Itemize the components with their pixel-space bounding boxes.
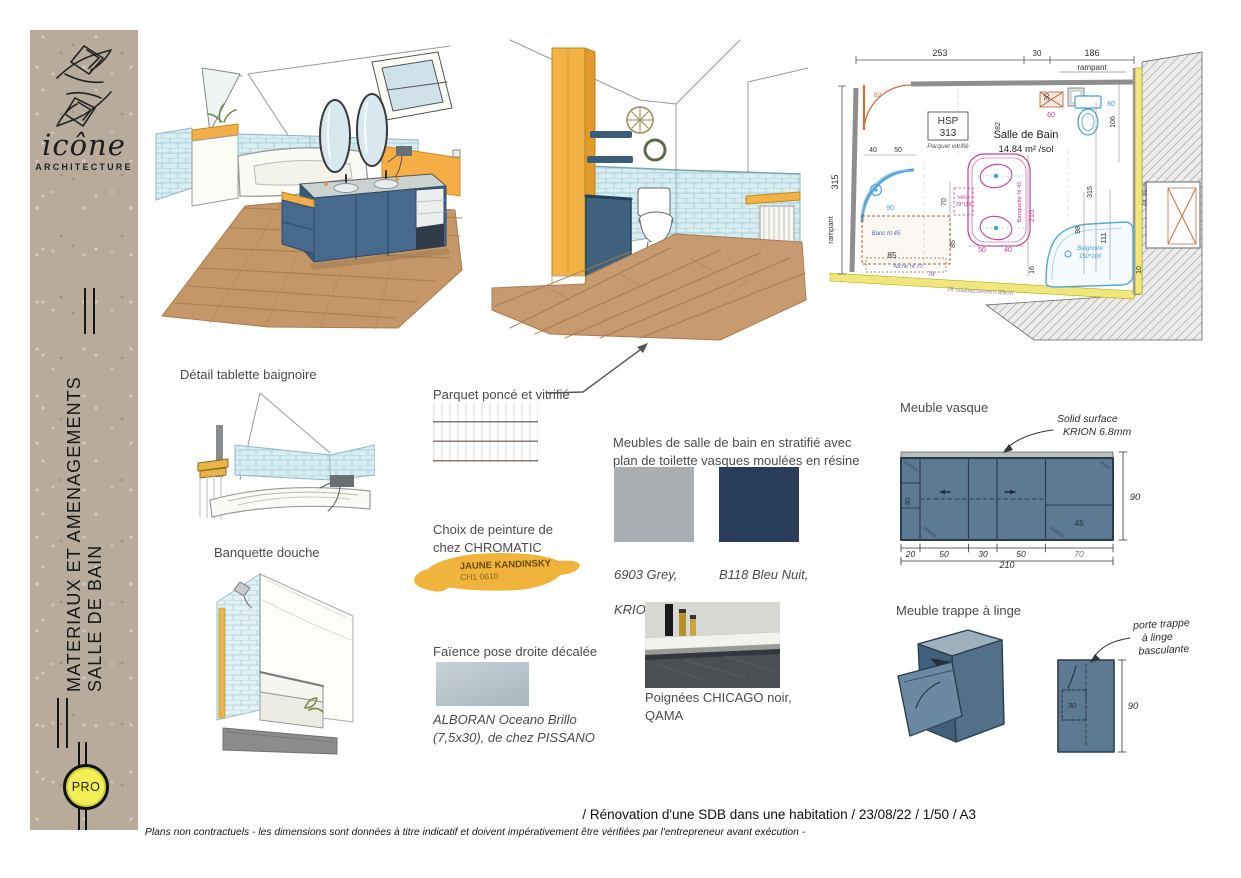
pro-badge-label: PRO xyxy=(72,780,101,794)
plan-dim-16: 16 xyxy=(1029,266,1036,274)
sketch-bathroom-toilet xyxy=(490,38,810,350)
plan-hsp-value: 313 xyxy=(940,128,957,139)
plan-alt-label: Alt. 83cm xyxy=(1143,181,1149,206)
plan-dim-50b: 50 xyxy=(978,247,986,254)
plan-dim-60: 60 xyxy=(1047,112,1055,119)
board-title: MATERIAUX ET AMENAGEMENTS SALLE DE BAIN xyxy=(64,272,106,692)
trappe-dim-height: 90 xyxy=(1128,701,1139,712)
plan-dim-85v: 85 xyxy=(950,240,957,248)
sketch-trappe-linge: porte trappe à linge basculante 30 90 xyxy=(890,612,1200,772)
polyrey-navy-ref-line1: B118 Bleu Nuit, xyxy=(719,567,808,582)
logo-name: icône xyxy=(30,130,138,160)
faience-swatch xyxy=(436,662,529,706)
plan-velux-size: 78*118 xyxy=(955,202,971,208)
sketch-detail-tablette xyxy=(180,385,375,525)
plan-dim-30-top: 30 xyxy=(1033,49,1042,58)
plan-dim-186: 186 xyxy=(1084,48,1099,58)
plan-dim-315-left: 315 xyxy=(830,174,840,189)
plan-dim-253: 253 xyxy=(932,48,947,58)
plan-dim-106: 106 xyxy=(1110,116,1117,128)
paint-swatch: JAUNE KANDINSKY CH1 0610 xyxy=(423,551,564,594)
plan-dim-98: 98 xyxy=(1075,226,1082,234)
poignees-photo xyxy=(645,602,780,688)
detail-tablette-label: Détail tablette baignoire xyxy=(180,366,317,384)
sketch-meuble-vasque: Solid surface KRION 6.8mm 30 45 20 50 30… xyxy=(895,408,1153,568)
plan-dim-210: 210 xyxy=(1027,210,1036,223)
logo: icône ARCHITECTURE xyxy=(30,30,138,172)
plan-rampant-left: rampant xyxy=(828,215,835,243)
pro-badge: PRO xyxy=(63,764,109,810)
vasque-dim-height: 90 xyxy=(1130,492,1141,503)
board-title-line1: MATERIAUX ET AMENAGEMENTS xyxy=(64,272,85,692)
plan-room-area: 14.84 m² /sol xyxy=(999,144,1054,155)
plan-dim-90: 90 xyxy=(886,205,894,212)
plan-banc-label: Banc ht 45 xyxy=(872,231,901,237)
plan-dim-78: 78 xyxy=(928,272,935,278)
trappe-note-line2: à linge xyxy=(1141,631,1173,645)
vasque-dim-inner45: 45 xyxy=(1075,519,1084,528)
vasque-dim-50b: 50 xyxy=(1016,549,1026,559)
parquet-label: Parquet poncé et vitrifié xyxy=(433,386,570,404)
vasque-dim-70: 70 xyxy=(1074,549,1084,559)
paint-swatch-text: JAUNE KANDINSKY CH1 0610 xyxy=(460,558,552,582)
vasque-note-line1: Solid surface xyxy=(1057,413,1118,425)
plan-dim-80: 80 xyxy=(1107,101,1115,108)
trappe-note-line3: basculante xyxy=(1138,643,1190,658)
plan-rampant-top: rampant xyxy=(1077,63,1107,72)
paint-code: CH1 0610 xyxy=(460,569,552,582)
plan-dim-40: 40 xyxy=(869,147,877,154)
plan-dim-70: 70 xyxy=(941,198,948,206)
vasque-dim-20: 20 xyxy=(905,549,916,559)
vasque-dim-30: 30 xyxy=(978,549,988,559)
logo-subtitle: ARCHITECTURE xyxy=(30,162,138,172)
sketch-bathroom-vanity xyxy=(150,38,470,338)
vasque-dim-inner30: 30 xyxy=(903,497,912,506)
plan-baignoire-size: 150*100 xyxy=(1079,254,1102,260)
floor-plan: 253 30 186 rampant 315 rampant 82 HSP 31… xyxy=(828,42,1203,342)
banquette-label: Banquette douche xyxy=(214,544,320,562)
vasque-dim-total: 210 xyxy=(998,560,1014,568)
faience-label: Faïence pose droite décalée xyxy=(433,643,597,661)
plan-dim-111: 111 xyxy=(1101,233,1108,244)
plan-dim-82r: 82 xyxy=(995,122,1002,130)
plan-dim-315r: 315 xyxy=(1087,186,1094,198)
plan-baignoire-label: Baignoire xyxy=(1077,246,1103,252)
plan-dim-10: 10 xyxy=(1136,266,1143,274)
plan-niche-label: Niche ht 70 xyxy=(893,264,923,270)
plan-room-name: Salle de Bain xyxy=(994,129,1059,141)
footer-project-line: / Rénovation d'une SDB dans une habitati… xyxy=(500,807,976,822)
poignees-label: Poignées CHICAGO noir, QAMA xyxy=(645,689,792,724)
plan-dim-85: 85 xyxy=(887,250,897,260)
plan-dim-82-door: 82 xyxy=(874,92,882,99)
footer-disclaimer: Plans non contractuels - les dimensions … xyxy=(145,827,805,838)
kraft-sidebar: icône ARCHITECTURE MATERIAUX ET AMENAGEM… xyxy=(30,30,138,830)
board-title-line2: SALLE DE BAIN xyxy=(85,272,106,692)
divider-double-line-bottom xyxy=(57,698,68,748)
krion-grey-swatch xyxy=(614,467,694,542)
plan-hsp: HSP xyxy=(938,116,959,127)
plan-dim-50: 50 xyxy=(894,147,902,154)
parquet-swatch xyxy=(433,403,538,462)
peinture-label: Choix de peinture de chez CHROMATIC xyxy=(433,521,553,556)
logo-emblem-icon xyxy=(45,42,123,134)
trappe-dim-inner: 30 xyxy=(1068,701,1077,710)
plan-velux-label: Velux xyxy=(957,195,970,201)
vasque-dim-50a: 50 xyxy=(939,549,949,559)
sketch-banquette-douche xyxy=(205,560,360,765)
polyrey-navy-swatch xyxy=(719,467,799,542)
krion-grey-ref-line1: 6903 Grey, xyxy=(614,567,677,582)
faience-ref: ALBORAN Oceano Brillo (7,5x30), de chez … xyxy=(433,711,595,746)
plan-dim-30r: 30 xyxy=(1044,93,1051,101)
plan-hsp-note: Parquet vitrifié xyxy=(927,143,969,150)
vasque-note-line2: KRION 6.8mm xyxy=(1063,426,1132,438)
meubles-label: Meubles de salle de bain en stratifié av… xyxy=(613,434,865,469)
plan-dim-40b: 40 xyxy=(1004,247,1012,254)
trappe-note-line1: porte trappe xyxy=(1132,617,1190,632)
plan-banquette-label: Banquette ht 45 xyxy=(1017,182,1023,223)
